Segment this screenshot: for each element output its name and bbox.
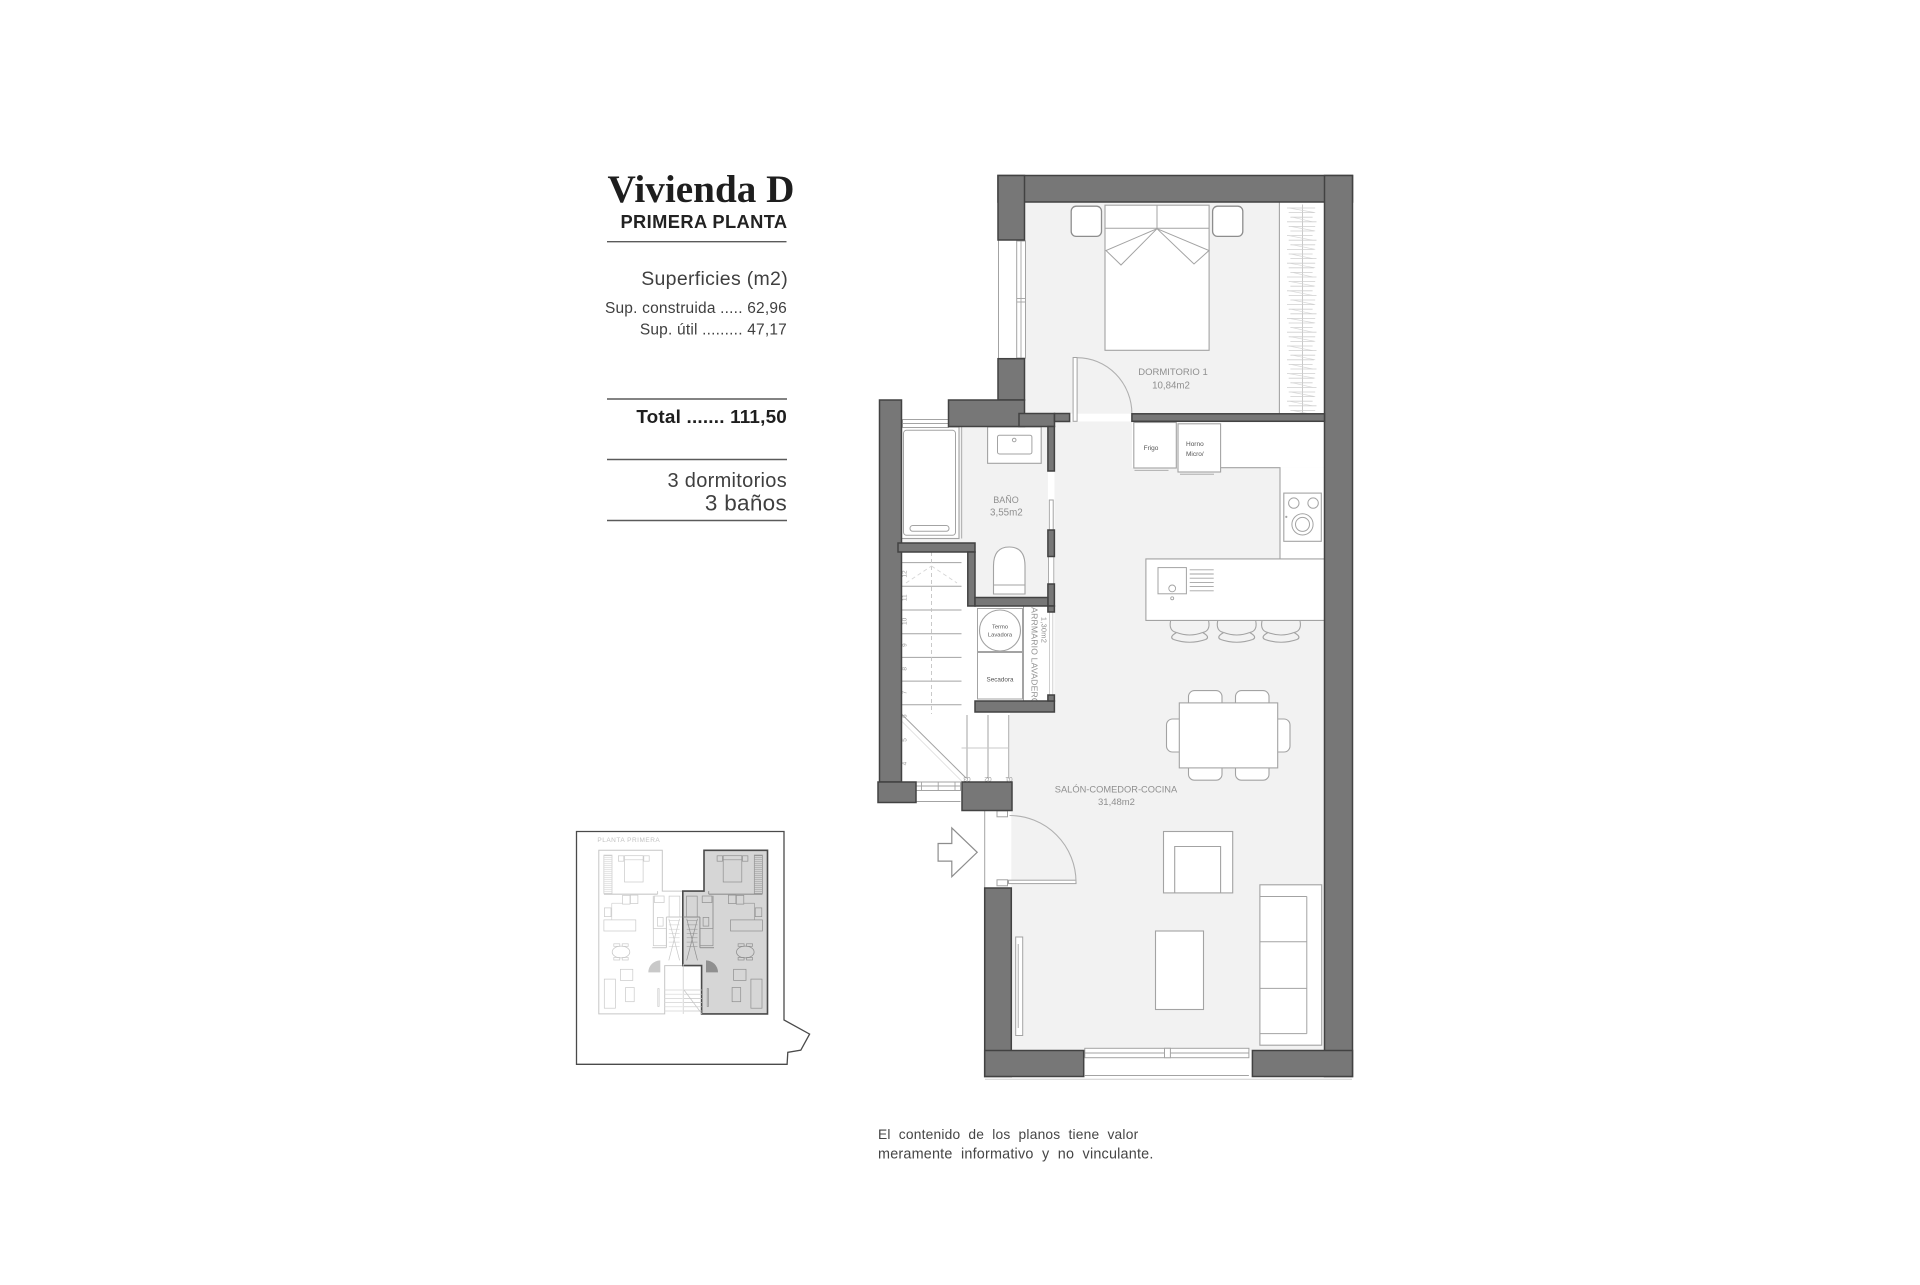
svg-text:11: 11 (902, 594, 909, 601)
svg-text:Frigo: Frigo (1144, 445, 1159, 452)
svg-text:PLANTA PRIMERA: PLANTA PRIMERA (597, 837, 660, 844)
svg-text:Superficies (m2): Superficies (m2) (641, 268, 788, 290)
svg-text:4: 4 (902, 761, 909, 765)
svg-text:1,30m2: 1,30m2 (1040, 617, 1049, 643)
svg-text:Sup. construida ..... 62,96: Sup. construida ..... 62,96 (605, 300, 787, 317)
svg-text:8: 8 (902, 667, 909, 671)
svg-text:Total ....... 111,50: Total ....... 111,50 (636, 407, 787, 428)
svg-text:Termo: Termo (992, 625, 1008, 631)
svg-text:6: 6 (902, 714, 909, 718)
svg-text:meramente informativo y no: meramente informativo y no vinculante. (878, 1147, 1154, 1163)
svg-text:Vivienda D: Vivienda D (608, 168, 795, 211)
svg-text:7: 7 (902, 690, 909, 694)
svg-text:PRIMERA PLANTA: PRIMERA PLANTA (620, 211, 787, 232)
svg-text:Lavadora: Lavadora (988, 633, 1013, 639)
svg-text:ARRMARIO LAVADERO: ARRMARIO LAVADERO (1030, 607, 1040, 705)
svg-text:9: 9 (902, 643, 909, 647)
svg-text:31,48m2: 31,48m2 (1098, 797, 1135, 808)
svg-text:SALÓN-COMEDOR-COCINA: SALÓN-COMEDOR-COCINA (1055, 785, 1178, 795)
svg-text:BAÑO: BAÑO (993, 495, 1019, 505)
svg-text:DORMITORIO 1: DORMITORIO 1 (1138, 367, 1208, 378)
svg-text:5: 5 (902, 738, 909, 742)
svg-text:Micro/: Micro/ (1186, 451, 1204, 458)
svg-text:01: 01 (1005, 775, 1013, 782)
svg-text:Secadora: Secadora (987, 677, 1014, 684)
svg-text:10: 10 (902, 617, 909, 625)
svg-text:3,55m2: 3,55m2 (990, 508, 1023, 519)
svg-text:Sup. útil ......... 47,17: Sup. útil ......... 47,17 (640, 322, 787, 339)
svg-text:El contenido de los planos: El contenido de los planos tiene valor (878, 1127, 1139, 1142)
svg-text:12: 12 (902, 570, 909, 578)
svg-text:02: 02 (984, 775, 992, 782)
svg-text:Horno: Horno (1186, 441, 1204, 448)
svg-text:3 dormitorios: 3 dormitorios (668, 470, 788, 492)
svg-text:3 baños: 3 baños (705, 491, 787, 516)
svg-text:03: 03 (963, 775, 971, 782)
svg-text:10,84m2: 10,84m2 (1152, 381, 1190, 392)
